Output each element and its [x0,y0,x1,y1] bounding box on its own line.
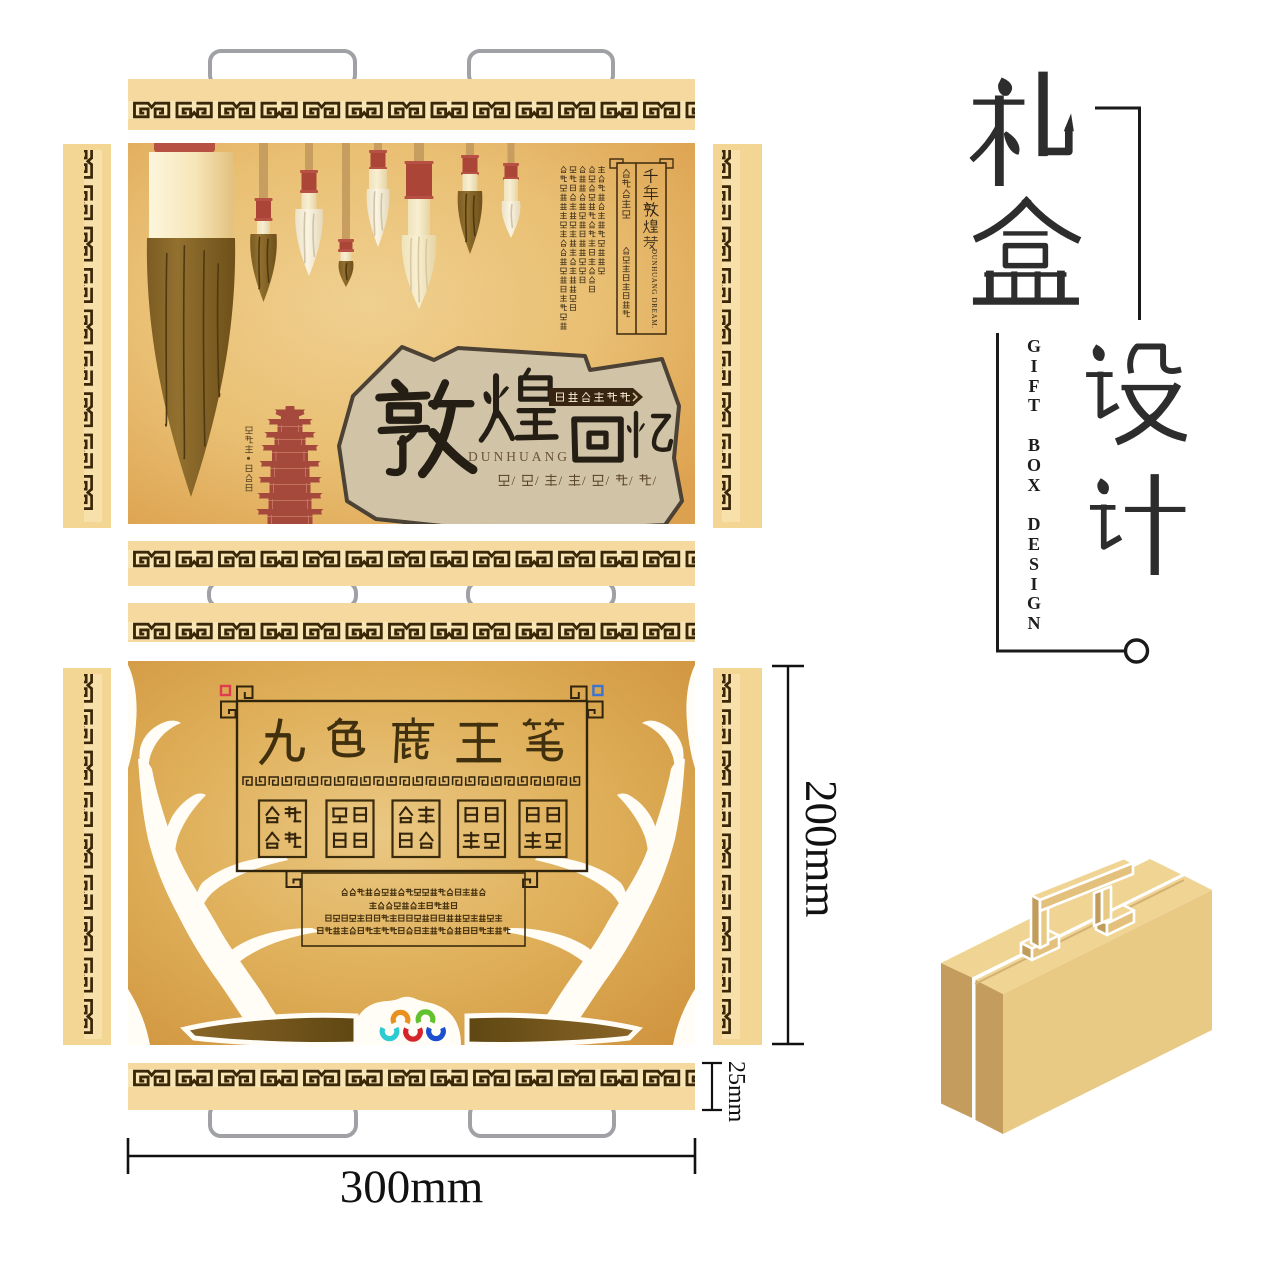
svg-text:DUNHUANG DREAM.: DUNHUANG DREAM. [650,249,658,329]
svg-text:/: / [512,473,516,488]
svg-text:/: / [559,473,563,488]
svg-text:/: / [535,473,539,488]
svg-text:/: / [629,473,633,488]
svg-text:/: / [653,473,657,488]
svg-text:/: / [582,473,586,488]
svg-text:/: / [606,473,610,488]
svg-text:DUNHUANG: DUNHUANG [468,449,570,464]
